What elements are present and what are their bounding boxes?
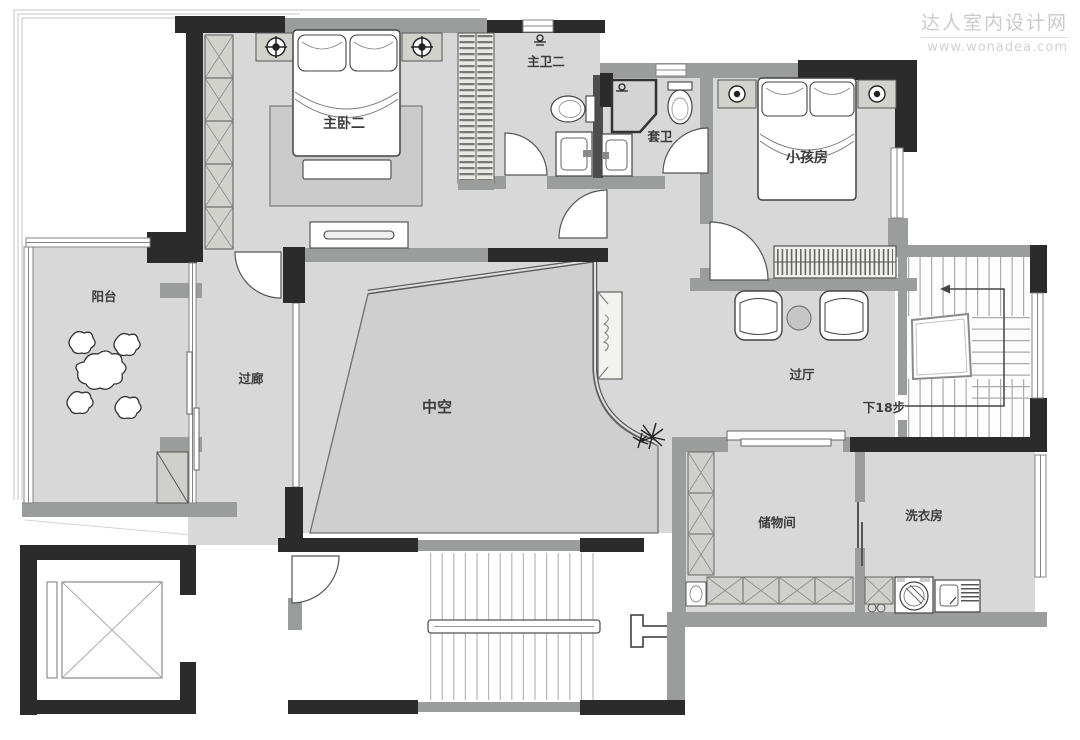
wardrobe — [205, 35, 233, 249]
floorplan-canvas: 达人室内设计网 www.wonadea.com — [0, 0, 1080, 740]
pillow — [762, 82, 807, 116]
laundry-sink — [935, 580, 980, 612]
pillow — [298, 35, 346, 71]
label-stairs-down: 下18步 — [863, 400, 905, 415]
watermark-url: www.wonadea.com — [921, 40, 1068, 55]
bed-bench — [303, 160, 391, 179]
toilet-icon — [668, 82, 692, 124]
label-laundry: 洗衣房 — [905, 508, 943, 523]
corridor-void-railing — [293, 303, 299, 487]
door-stair-hall — [292, 556, 339, 603]
elevator-door — [47, 582, 57, 678]
armchair — [820, 291, 868, 340]
outer-stair-hall — [428, 615, 672, 647]
toilet-icon — [551, 96, 595, 122]
label-kids-room: 小孩房 — [786, 149, 828, 166]
watermark-site-name: 达人室内设计网 — [921, 8, 1068, 38]
tv-cabinet — [310, 222, 408, 248]
floorplan-drawing: 主卧二 主卫二 套卫 小孩房 阳台 过廊 中空 过厅 下18步 储物间 洗衣房 — [0, 0, 1080, 740]
armchair — [735, 291, 782, 340]
staircase — [898, 245, 1035, 437]
console-table — [598, 292, 622, 379]
vanity-sink — [602, 134, 632, 176]
bed-double — [293, 30, 400, 156]
wall-shelf — [727, 431, 845, 446]
label-void: 中空 — [422, 398, 452, 416]
bed-double — [758, 78, 856, 200]
tv-icon — [324, 231, 394, 239]
label-master-bath: 主卫二 — [527, 54, 565, 69]
elevator — [20, 545, 196, 715]
vanity-sink — [556, 132, 592, 176]
label-master-bedroom: 主卧二 — [323, 115, 365, 132]
label-storage: 储物间 — [757, 515, 796, 530]
label-ensuite-bath: 套卫 — [646, 129, 673, 144]
label-hall: 过厅 — [789, 367, 815, 382]
pillow — [350, 35, 397, 71]
label-corridor: 过廊 — [238, 371, 264, 386]
watermark: 达人室内设计网 www.wonadea.com — [921, 8, 1068, 55]
pillow — [810, 82, 854, 116]
dresser — [774, 246, 896, 278]
t-column — [631, 615, 672, 647]
washing-machine-icon — [895, 577, 933, 613]
stair-well-inner — [916, 319, 967, 375]
small-sink — [686, 582, 706, 606]
walkin-closet — [458, 33, 494, 190]
balcony-pillar — [157, 452, 188, 503]
label-balcony: 阳台 — [91, 289, 116, 304]
side-table — [787, 306, 811, 330]
